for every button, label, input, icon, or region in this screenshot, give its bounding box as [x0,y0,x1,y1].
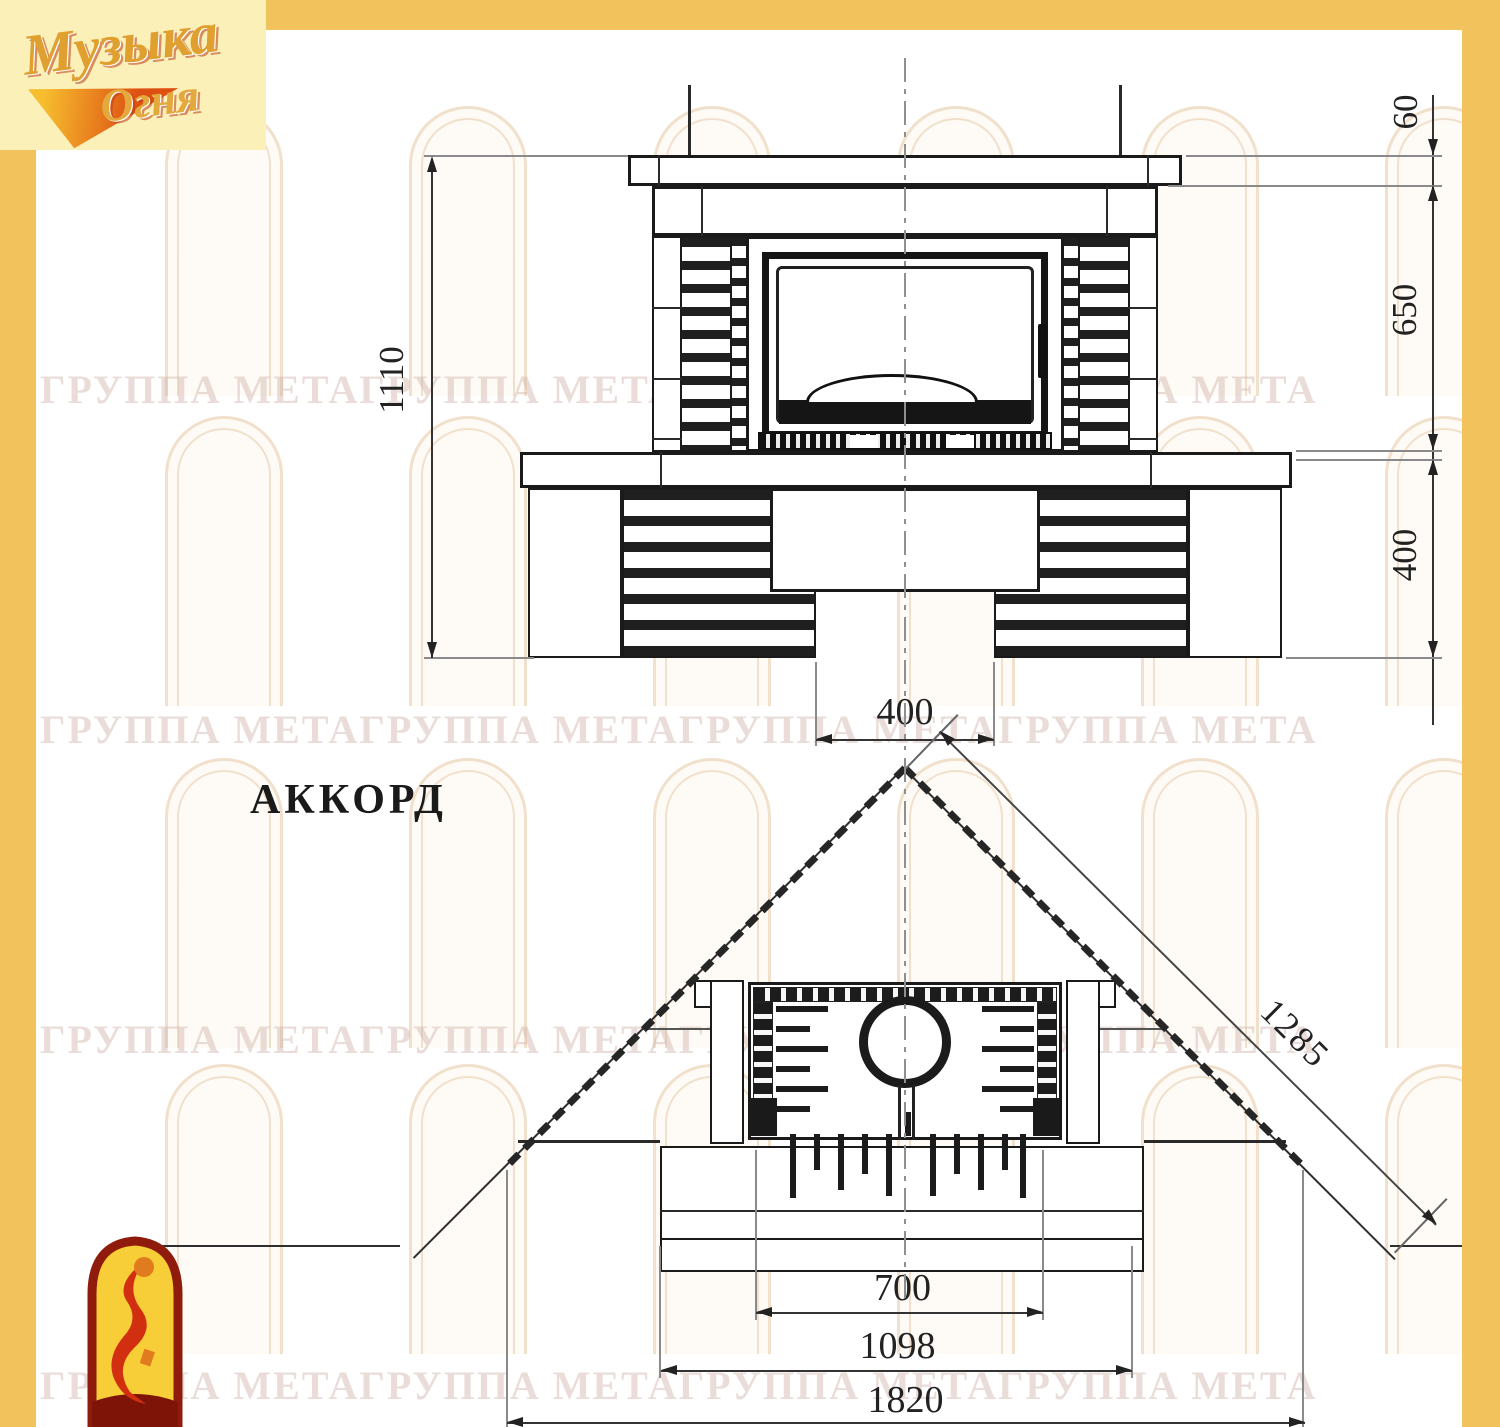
dim-arrow [978,734,994,744]
dim-arrow [816,734,832,744]
extension-line [659,1246,661,1378]
fascia-joint [701,186,703,236]
grate-bar [978,1134,984,1190]
mantel-joint [658,155,660,186]
dimension-line [431,160,433,658]
dim-label-mantel: 60 [1388,82,1424,142]
watermark-arch [1141,106,1259,396]
wall-tick-left [776,1046,828,1052]
left-pier-plan [710,980,744,1144]
platform-back-edge-left [518,1140,660,1143]
dim-arrow-up [427,156,437,172]
wall-tick-right [982,1086,1034,1092]
frame-strip-left [0,0,36,1427]
flame-head [134,1257,154,1277]
extension-line [1296,450,1442,452]
right-pier-bracket [1098,980,1116,1008]
firebox-corner-block [1033,1098,1059,1136]
platform-back-edge-right [1144,1140,1286,1143]
dim-label-base-height: 400 [1387,510,1423,600]
plan-centerline [904,758,906,1303]
firebox-corner-block [751,1098,777,1136]
wall-tick-right [1000,1106,1034,1112]
dim-arrow [1428,434,1438,450]
grate-bar [814,1134,820,1170]
grate-bar [790,1134,796,1198]
wall-tick-left [776,1006,828,1012]
column-joint [1128,438,1158,440]
watermark-arch-inner [421,428,515,706]
wall-tick-right [982,1046,1034,1052]
grate-bar [954,1134,960,1174]
wall-tick-right [1000,1066,1034,1072]
watermark-text-row: ГРУППА МЕТАГРУППА МЕТАГРУППА МЕТАГРУППА … [40,706,1450,752]
right-column-plain [1128,236,1158,452]
wall-tick-left [776,1086,828,1092]
dimension-line [661,1370,1132,1372]
wall-tick-right [1000,1026,1034,1032]
dim-arrow-down [427,642,437,658]
dim-label-total-height: 1110 [374,325,410,435]
left-column-plain [652,236,682,452]
extension-line [1296,459,1442,461]
extension-line [1042,1150,1044,1320]
dim-label-firebox-zone: 650 [1387,265,1423,355]
dimension-line [507,1422,1305,1424]
grille-gap [946,435,974,448]
extension-line [1168,185,1442,187]
fireplace-drawing-sheet: ГРУППА МЕТАГРУППА МЕТАГРУППА МЕТАГРУППА … [0,0,1500,1427]
right-pier-plan [1066,980,1100,1144]
front-centerline [904,58,906,750]
model-name-label: АККОРД [250,776,550,824]
watermark-arch [409,106,527,396]
counter-line-right [1100,1028,1165,1030]
left-pier-bracket [694,980,712,1008]
base-right-block [1188,488,1282,658]
watermark-arch-inner [1153,1076,1247,1354]
dim-arrow [1428,459,1438,475]
wall-tick-left [776,1066,810,1072]
grate-bar [930,1134,936,1196]
column-joint [1128,307,1158,309]
dim-arrow [1027,1307,1043,1317]
flue-stub-line [912,1085,915,1140]
extension-line [506,1170,508,1427]
dim-arrow [756,1307,772,1317]
grate-bar [838,1134,844,1190]
watermark-arch-inner [177,118,271,396]
watermark-arch [409,1064,527,1354]
grate-bar [886,1134,892,1196]
arch-flame-logo [84,1232,186,1427]
dimension-line [756,1312,1043,1314]
grate-bar [862,1134,868,1174]
column-joint [1128,378,1158,380]
dim-arrow [1428,185,1438,201]
base-left-block [528,488,622,658]
dim-arrow [1428,139,1438,155]
right-column-bricks [1078,236,1130,452]
extension-line [755,1150,757,1320]
wall-tick-left [776,1106,810,1112]
frame-strip-right [1462,0,1500,1427]
grille-gap [850,435,878,448]
watermark-arch-inner [1153,770,1247,1048]
dim-label-opening-width: 700 [845,1268,960,1308]
fascia-joint [1106,186,1108,236]
counter-line-left [645,1028,710,1030]
extension-line [424,657,534,659]
watermark-arch [165,416,283,706]
column-joint [652,438,682,440]
column-joint [652,378,682,380]
watermark-text-row: ГРУППА МЕТАГРУППА МЕТАГРУППА МЕТАГРУППА … [40,1016,1450,1062]
extension-line [424,155,628,157]
grate-bar [1020,1134,1026,1198]
mantel-joint [1147,155,1149,186]
dim-arrow [507,1417,523,1427]
brand-word-2: Огня [97,68,202,133]
wall-tick-right [982,1006,1034,1012]
watermark-arch-inner [177,1076,271,1354]
hearth-shelf [520,452,1292,488]
dim-arrow [661,1365,677,1375]
hearth-joint [660,452,662,488]
chimney-line-right [1119,85,1122,157]
plan-front-band [660,1146,1144,1240]
column-joint [652,307,682,309]
watermark-text-row: ГРУППА МЕТАГРУППА МЕТАГРУППА МЕТАГРУППА … [40,1362,1450,1408]
extension-line [1286,657,1442,659]
grate-bar [1002,1134,1008,1170]
extension-line [1131,1246,1133,1378]
brand-logo-panel: Музыка Огня [0,0,266,150]
flue-stub-line [898,1085,901,1140]
watermark-arch-inner [177,428,271,706]
dim-label-front-width: 1098 [820,1326,975,1366]
extension-line [1186,155,1442,157]
dim-label-overall-width: 1820 [828,1380,983,1420]
watermark-arch [409,416,527,706]
extension-line [1302,1170,1304,1427]
chimney-line-left [688,85,691,157]
left-column-bricks [680,236,732,452]
door-handle [1038,324,1047,378]
dim-arrow [1116,1365,1132,1375]
wall-tick-left [776,1026,810,1032]
dim-arrow [1428,641,1438,657]
hearth-joint [1150,452,1152,488]
plan-front-band-line [660,1210,1144,1212]
dim-arrow [1289,1417,1305,1427]
watermark-arch-inner [421,1076,515,1354]
